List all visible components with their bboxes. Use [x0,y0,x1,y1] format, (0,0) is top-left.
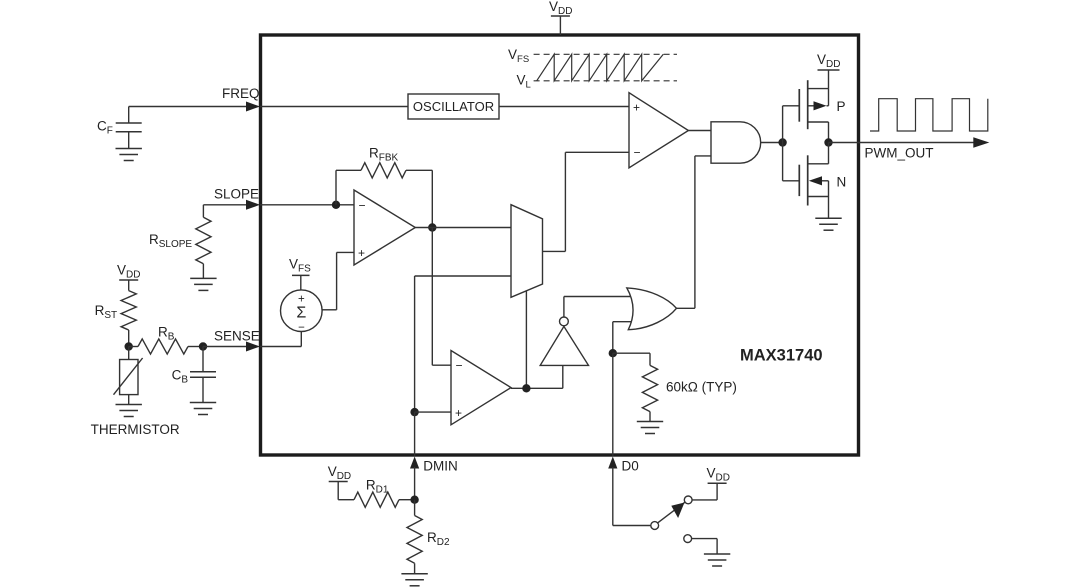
svg-text:CF: CF [97,119,113,137]
svg-text:VFS: VFS [289,257,311,275]
svg-text:−: − [634,146,641,160]
svg-text:+: + [633,101,640,115]
svg-text:MAX31740: MAX31740 [740,347,823,365]
svg-text:SLOPE: SLOPE [214,187,259,202]
svg-text:D0: D0 [622,459,639,474]
svg-text:THERMISTOR: THERMISTOR [91,422,180,437]
svg-text:RB: RB [158,325,175,343]
svg-text:P: P [837,99,846,114]
svg-text:VDD: VDD [549,0,572,17]
svg-text:RST: RST [95,303,118,321]
svg-text:CB: CB [172,368,189,386]
svg-text:VDD: VDD [817,52,840,70]
svg-text:SENSE: SENSE [214,329,260,344]
svg-text:VFS: VFS [508,47,529,65]
svg-text:−: − [456,359,463,373]
svg-text:+: + [455,406,462,420]
svg-text:VDD: VDD [328,464,351,482]
svg-text:+: + [358,246,365,260]
svg-text:VDD: VDD [117,263,140,281]
svg-text:OSCILLATOR: OSCILLATOR [413,99,494,114]
svg-text:N: N [837,175,847,190]
svg-text:VL: VL [517,73,531,91]
svg-text:PWM_OUT: PWM_OUT [865,146,934,161]
svg-text:RD1: RD1 [366,478,389,496]
svg-text:RFBK: RFBK [369,146,399,164]
svg-text:FREQ: FREQ [222,86,260,101]
svg-text:60kΩ (TYP): 60kΩ (TYP) [666,380,737,395]
svg-text:RD2: RD2 [427,530,450,548]
svg-text:RSLOPE: RSLOPE [149,232,192,250]
svg-text:−: − [359,198,366,212]
svg-text:DMIN: DMIN [423,459,458,474]
svg-text:VDD: VDD [707,466,730,484]
svg-text:Σ: Σ [296,305,306,322]
